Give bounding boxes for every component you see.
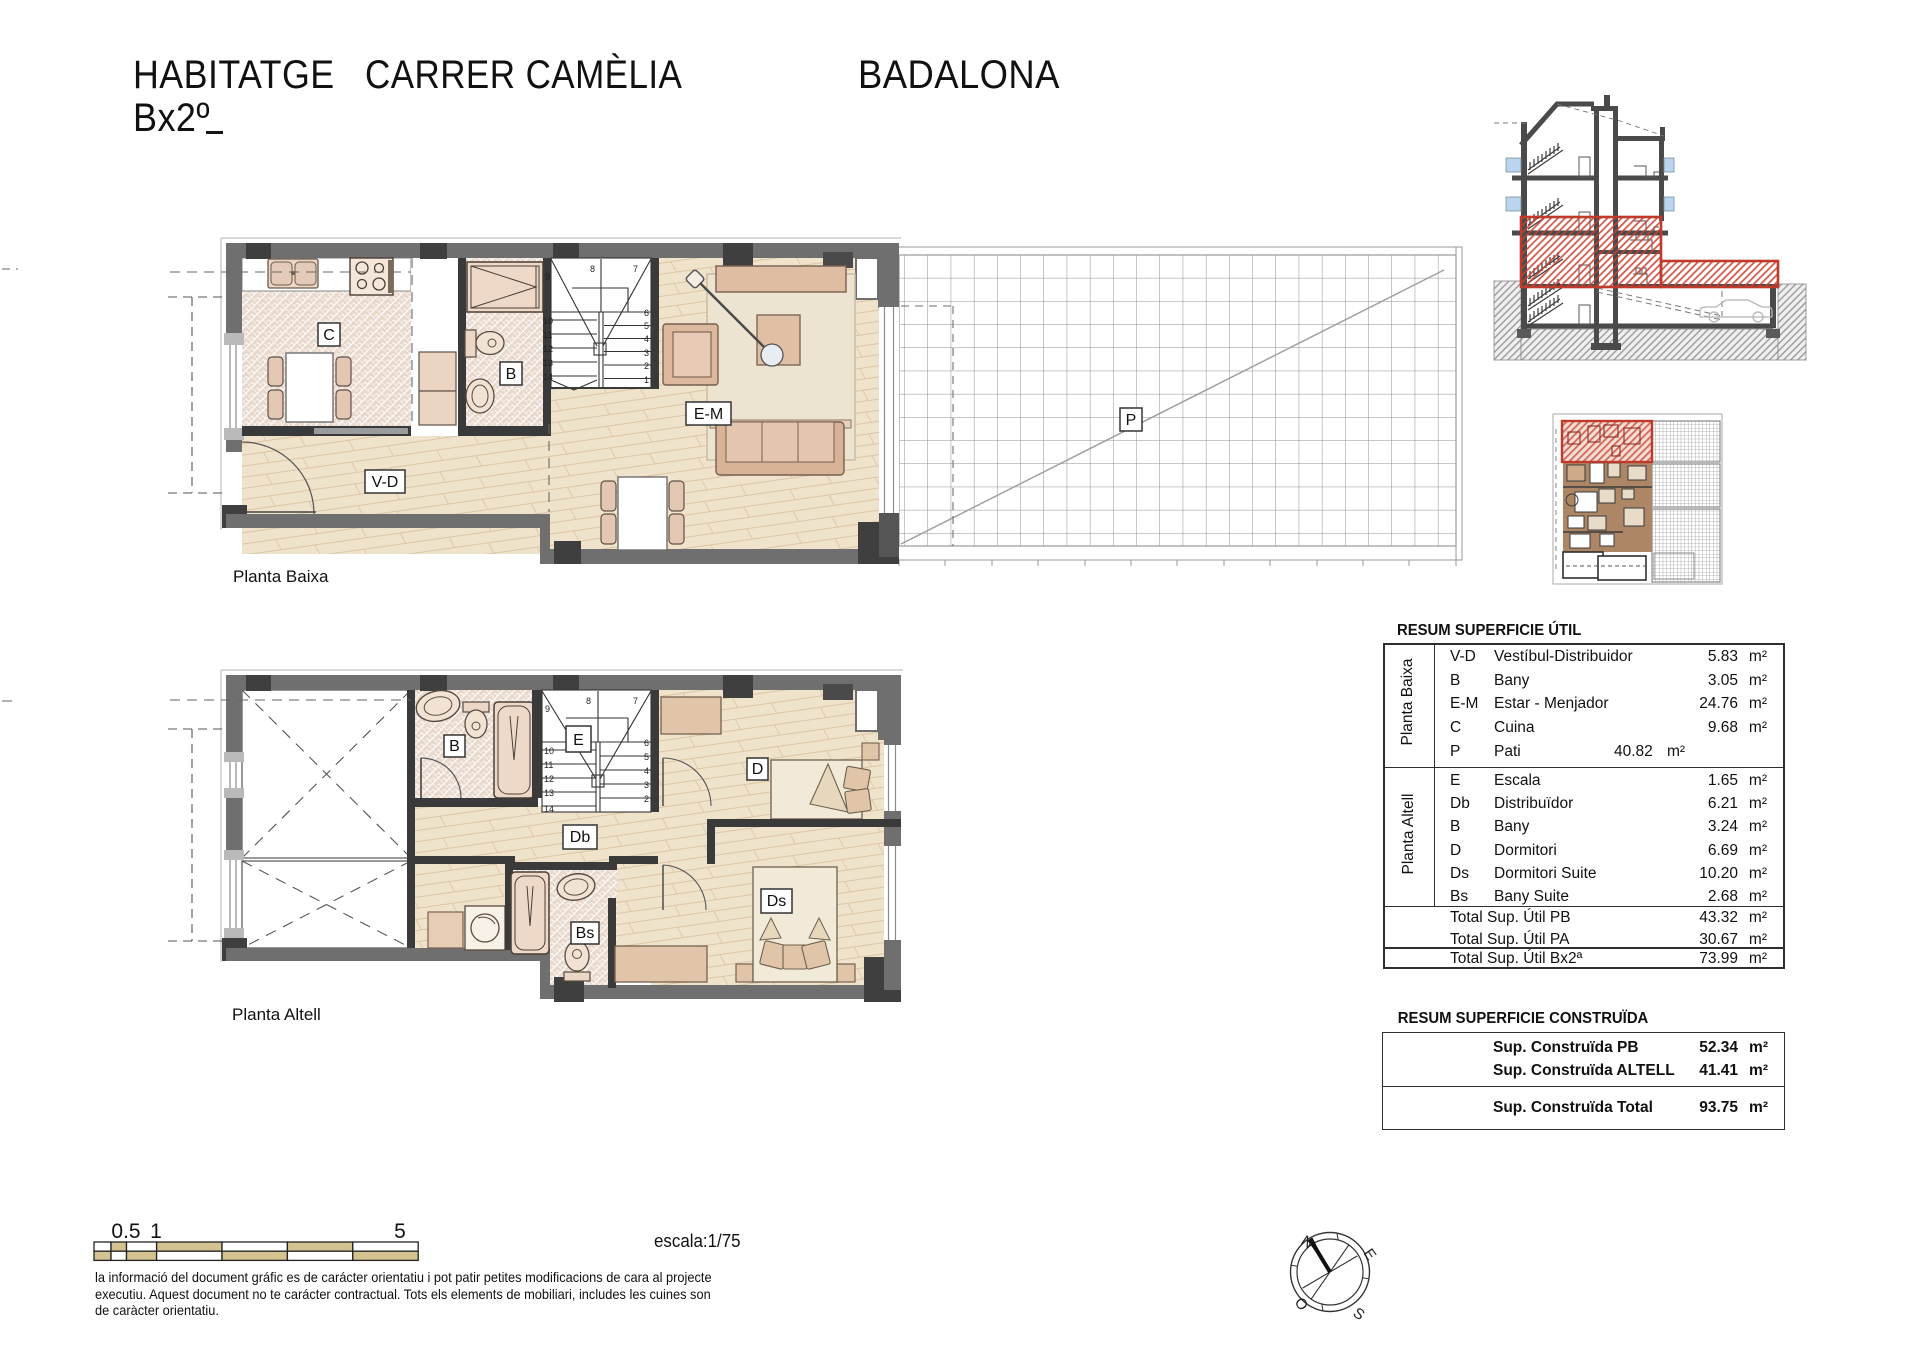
- svg-text:E-M: E-M: [694, 406, 723, 423]
- svg-text:5: 5: [644, 752, 649, 762]
- svg-text:10: 10: [543, 316, 553, 326]
- svg-text:E: E: [573, 732, 584, 749]
- svg-text:12: 12: [544, 774, 554, 784]
- svg-text:1: 1: [150, 1220, 162, 1243]
- svg-text:Planta Altell: Planta Altell: [232, 1005, 321, 1024]
- svg-text:D: D: [752, 761, 764, 778]
- svg-text:Planta Baixa: Planta Baixa: [233, 567, 329, 586]
- svg-text:P: P: [1126, 412, 1137, 429]
- svg-text:2: 2: [644, 361, 649, 371]
- svg-text:14: 14: [544, 804, 554, 814]
- svg-text:0.5: 0.5: [111, 1220, 140, 1243]
- svg-text:9: 9: [545, 704, 550, 714]
- svg-text:4: 4: [644, 334, 649, 344]
- svg-text:B: B: [449, 738, 460, 755]
- svg-text:8: 8: [590, 264, 595, 274]
- svg-text:E: E: [1360, 1246, 1380, 1264]
- svg-text:11: 11: [544, 760, 553, 770]
- svg-text:6: 6: [644, 308, 649, 318]
- svg-text:7: 7: [633, 264, 638, 274]
- svg-text:Db: Db: [570, 829, 591, 846]
- svg-text:6: 6: [644, 738, 649, 748]
- svg-text:14: 14: [543, 372, 553, 382]
- svg-text:1: 1: [644, 375, 649, 385]
- svg-text:2: 2: [644, 794, 649, 804]
- svg-text:10: 10: [544, 746, 554, 756]
- svg-text:4: 4: [644, 766, 649, 776]
- svg-text:11: 11: [543, 330, 552, 340]
- svg-text:13: 13: [544, 788, 554, 798]
- svg-text:12: 12: [543, 344, 553, 354]
- svg-text:V-D: V-D: [372, 474, 399, 491]
- svg-text:9: 9: [545, 272, 550, 282]
- svg-text:3: 3: [644, 780, 649, 790]
- svg-text:S: S: [1350, 1304, 1368, 1324]
- svg-text:Ds: Ds: [767, 893, 787, 910]
- svg-text:B: B: [506, 366, 517, 383]
- svg-text:7: 7: [633, 696, 638, 706]
- svg-text:3: 3: [644, 348, 649, 358]
- svg-text:Bs: Bs: [576, 925, 595, 942]
- svg-text:5: 5: [644, 321, 649, 331]
- svg-text:5: 5: [394, 1220, 406, 1243]
- svg-text:8: 8: [586, 696, 591, 706]
- svg-text:13: 13: [543, 358, 553, 368]
- svg-text:C: C: [323, 327, 335, 344]
